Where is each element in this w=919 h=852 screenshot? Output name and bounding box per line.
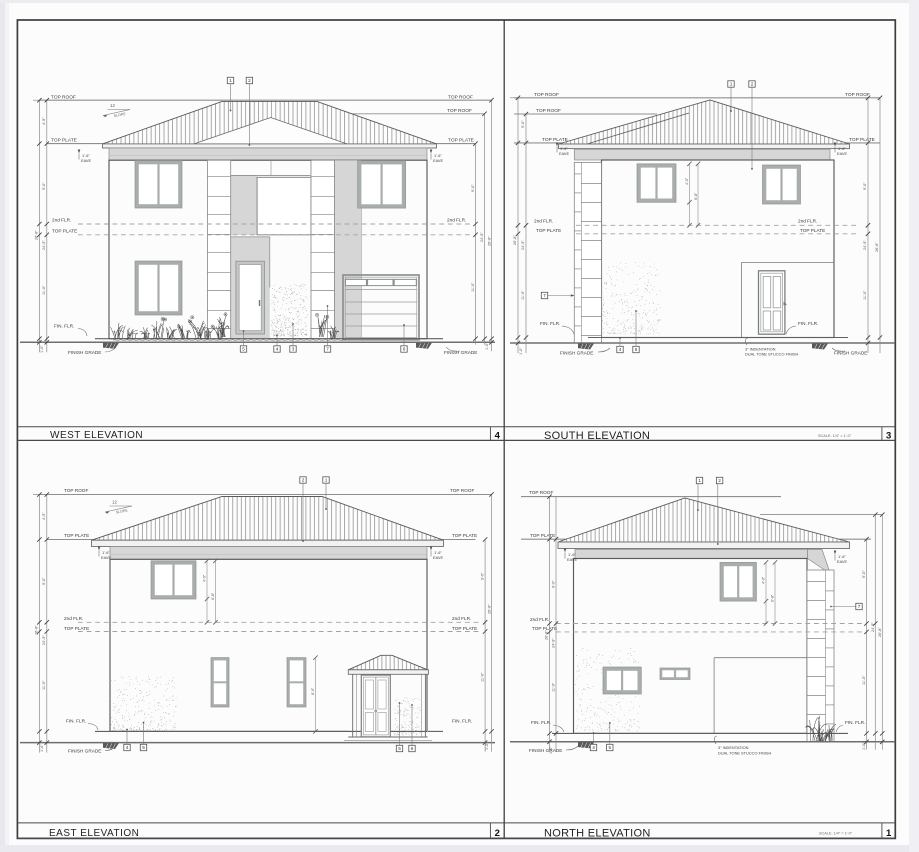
svg-text:TOP PLATE: TOP PLATE (452, 533, 477, 538)
svg-text:26'-8": 26'-8" (513, 235, 517, 245)
svg-text:24'-9": 24'-9" (521, 240, 525, 250)
svg-text:EAVE: EAVE (837, 559, 847, 564)
svg-text:SOUTH ELEVATION: SOUTH ELEVATION (544, 430, 650, 442)
svg-text:9'-0": 9'-0" (42, 577, 46, 585)
svg-text:9'-0": 9'-0" (471, 184, 475, 192)
svg-text:5: 5 (608, 745, 611, 750)
svg-text:TOP PLATE: TOP PLATE (52, 229, 77, 234)
svg-text:TOP ROOF: TOP ROOF (64, 488, 88, 493)
svg-text:TOP ROOF: TOP ROOF (536, 108, 561, 114)
svg-text:1'-0": 1'-0" (549, 746, 553, 754)
svg-text:WEST ELEVATION: WEST ELEVATION (50, 430, 143, 441)
svg-text:2: 2 (495, 828, 500, 839)
svg-text:26'-8": 26'-8" (35, 625, 39, 635)
svg-text:7: 7 (858, 604, 861, 609)
svg-text:2nd FLR.: 2nd FLR. (447, 218, 466, 223)
svg-text:26'-8": 26'-8" (875, 242, 879, 252)
svg-text:6'-8": 6'-8" (211, 592, 215, 600)
svg-text:TOP ROOF: TOP ROOF (51, 94, 76, 100)
svg-text:2nd FLR.: 2nd FLR. (52, 218, 71, 223)
svg-text:11'-0": 11'-0" (863, 290, 867, 300)
svg-text:FINISH GRADE: FINISH GRADE (529, 748, 562, 753)
svg-text:TOP PLATE: TOP PLATE (536, 228, 561, 233)
svg-text:4: 4 (592, 745, 595, 750)
svg-text:1'-0": 1'-0" (862, 742, 866, 750)
svg-text:24'-9": 24'-9" (871, 622, 875, 632)
svg-text:TOP PLATE: TOP PLATE (542, 137, 568, 143)
svg-text:3: 3 (886, 431, 891, 442)
svg-text:1'-0": 1'-0" (519, 347, 523, 355)
svg-text:5: 5 (142, 745, 145, 750)
svg-text:4: 4 (495, 431, 501, 442)
svg-text:TOP PLATE: TOP PLATE (64, 533, 89, 538)
svg-text:1'-0": 1'-0" (40, 744, 44, 752)
svg-text:2nd FLR.: 2nd FLR. (530, 617, 549, 622)
svg-text:11'-0": 11'-0" (481, 672, 485, 682)
svg-text:FINISH GRADE: FINISH GRADE (68, 749, 101, 754)
svg-text:EAST ELEVATION: EAST ELEVATION (49, 828, 139, 839)
svg-text:11'-0": 11'-0" (521, 290, 525, 300)
svg-text:EAVE: EAVE (81, 158, 91, 163)
svg-text:TOP ROOF: TOP ROOF (845, 92, 870, 98)
svg-text:FIN. FLR.: FIN. FLR. (845, 720, 865, 725)
svg-text:SCALE: 1/4" = 1'-0": SCALE: 1/4" = 1'-0" (819, 831, 853, 835)
svg-text:12: 12 (110, 103, 115, 108)
svg-text:7: 7 (326, 347, 329, 352)
svg-text:11'-0": 11'-0" (42, 680, 46, 690)
svg-text:4'-0": 4'-0" (762, 576, 766, 584)
svg-text:3: 3 (292, 347, 295, 352)
svg-text:1'-0": 1'-0" (485, 742, 489, 750)
svg-text:TOP PLATE: TOP PLATE (849, 137, 875, 143)
svg-text:TOP ROOF: TOP ROOF (448, 94, 473, 100)
svg-text:5: 5 (635, 347, 638, 352)
svg-text:6'-8": 6'-8" (771, 594, 775, 602)
svg-text:1: 1 (730, 82, 733, 87)
svg-text:2nd FLR.: 2nd FLR. (452, 616, 471, 621)
svg-text:9'-0": 9'-0" (863, 182, 867, 190)
svg-text:FIN. FLR.: FIN. FLR. (54, 324, 74, 329)
svg-text:TOP PLATE: TOP PLATE (64, 626, 89, 631)
svg-text:26'-8": 26'-8" (488, 604, 492, 614)
svg-text:EAVE: EAVE (567, 557, 577, 562)
svg-text:9'-0": 9'-0" (42, 182, 46, 190)
svg-text:1: 1 (229, 78, 232, 83)
svg-text:11'-0": 11'-0" (862, 675, 866, 685)
svg-text:FIN. FLR.: FIN. FLR. (798, 321, 818, 326)
svg-text:1: 1 (698, 478, 701, 483)
svg-text:12: 12 (112, 500, 117, 505)
svg-text:4: 4 (126, 745, 129, 750)
svg-text:EAVE: EAVE (433, 555, 443, 560)
svg-text:TOP PLATE: TOP PLATE (452, 626, 477, 631)
svg-text:TOP PLATE: TOP PLATE (51, 137, 77, 143)
svg-text:2nd FLR.: 2nd FLR. (798, 219, 817, 224)
svg-text:FIN. FLR.: FIN. FLR. (531, 720, 551, 725)
svg-text:24'-9": 24'-9" (480, 232, 484, 242)
svg-text:26'-8": 26'-8" (488, 236, 492, 246)
svg-text:FIN. FLR.: FIN. FLR. (452, 719, 472, 724)
svg-text:2: 2 (751, 82, 754, 87)
svg-text:FINISH GRADE: FINISH GRADE (68, 350, 101, 355)
svg-text:EAVE: EAVE (433, 158, 443, 163)
svg-text:TOP ROOF: TOP ROOF (450, 488, 474, 493)
svg-text:2: 2 (718, 478, 721, 483)
svg-text:11'-0": 11'-0" (471, 282, 475, 292)
svg-text:FINISH GRADE: FINISH GRADE (444, 350, 477, 355)
svg-text:4'-9": 4'-9" (42, 512, 46, 520)
svg-text:24'-9": 24'-9" (552, 638, 556, 648)
svg-text:7: 7 (543, 293, 546, 298)
svg-text:9'-0": 9'-0" (552, 580, 556, 588)
svg-text:TOP ROOF: TOP ROOF (534, 92, 559, 98)
svg-text:2: 2 (302, 478, 305, 483)
svg-text:1: 1 (325, 478, 328, 483)
svg-text:SCALE: 1/4" = 1'-0": SCALE: 1/4" = 1'-0" (818, 434, 852, 438)
svg-text:24'-9": 24'-9" (863, 240, 867, 250)
svg-text:9'-0": 9'-0" (481, 572, 485, 580)
svg-text:1: 1 (886, 828, 892, 839)
svg-text:6'-8": 6'-8" (694, 192, 698, 200)
svg-text:2nd FLR.: 2nd FLR. (64, 616, 83, 621)
svg-text:6: 6 (411, 746, 414, 751)
svg-text:DUAL TONE STUCCO FINISH: DUAL TONE STUCCO FINISH (718, 751, 772, 756)
svg-text:EAVE: EAVE (559, 151, 569, 156)
svg-text:4: 4 (276, 347, 279, 352)
svg-text:DUAL TONE STUCCO FINISH: DUAL TONE STUCCO FINISH (745, 352, 799, 357)
svg-text:1'-0": 1'-0" (40, 345, 44, 353)
svg-text:5: 5 (242, 347, 245, 352)
svg-text:TOP PLATE: TOP PLATE (448, 137, 474, 143)
svg-text:1'-0": 1'-0" (485, 342, 489, 350)
svg-text:EAVE: EAVE (837, 151, 847, 156)
svg-text:8'-0": 8'-0" (311, 687, 315, 695)
svg-text:3" INDENTATION: 3" INDENTATION (718, 745, 749, 750)
svg-text:4'-9": 4'-9" (42, 117, 46, 125)
svg-text:EAVE: EAVE (101, 555, 111, 560)
svg-text:6: 6 (403, 347, 406, 352)
svg-text:26'-8": 26'-8" (878, 627, 882, 637)
svg-text:11'-0": 11'-0" (552, 682, 556, 692)
svg-text:2: 2 (248, 78, 251, 83)
svg-text:4'-0": 4'-0" (685, 177, 689, 185)
svg-text:TOP ROOF: TOP ROOF (529, 490, 553, 495)
svg-text:26'-8": 26'-8" (35, 230, 39, 240)
svg-text:11'-0": 11'-0" (42, 285, 46, 295)
svg-text:24'-9": 24'-9" (42, 635, 46, 645)
svg-text:FIN. FLR.: FIN. FLR. (540, 321, 560, 326)
svg-text:FIN. FLR.: FIN. FLR. (66, 719, 86, 724)
svg-text:9'-0": 9'-0" (862, 570, 866, 578)
svg-text:5: 5 (398, 746, 401, 751)
svg-text:24'-9": 24'-9" (42, 240, 46, 250)
svg-text:NORTH ELEVATION: NORTH ELEVATION (544, 827, 651, 839)
svg-text:TOP PLATE: TOP PLATE (800, 228, 825, 233)
svg-text:4: 4 (619, 347, 622, 352)
svg-text:4'-0": 4'-0" (203, 574, 207, 582)
svg-text:2nd FLR.: 2nd FLR. (534, 219, 553, 224)
svg-text:TOP ROOF: TOP ROOF (447, 108, 472, 114)
svg-text:26'-8": 26'-8" (545, 630, 549, 640)
svg-text:FINISH GRADE: FINISH GRADE (560, 351, 593, 356)
svg-text:9'-0": 9'-0" (521, 120, 525, 128)
